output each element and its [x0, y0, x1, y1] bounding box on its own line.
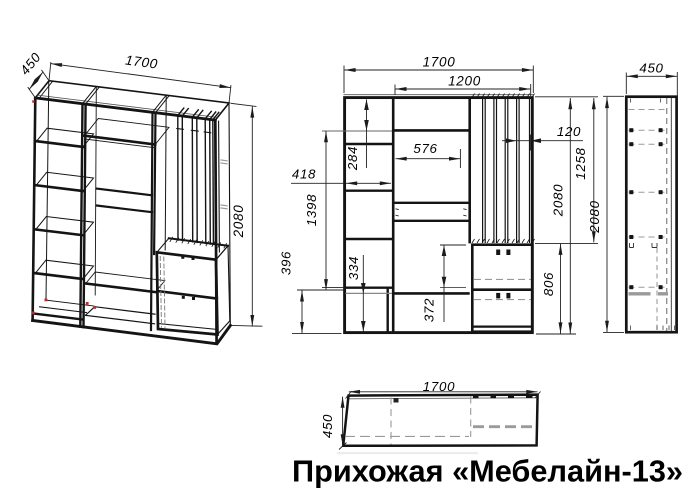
svg-text:1258: 1258 [573, 147, 588, 179]
svg-text:806: 806 [541, 272, 556, 296]
svg-text:418: 418 [292, 167, 316, 182]
svg-text:334: 334 [346, 256, 361, 280]
svg-text:450: 450 [639, 61, 663, 76]
svg-text:Прихожая «Мебелайн-13»: Прихожая «Мебелайн-13» [292, 454, 683, 489]
svg-text:450: 450 [320, 414, 335, 438]
svg-text:372: 372 [422, 298, 437, 322]
svg-text:2080: 2080 [231, 205, 246, 239]
svg-text:1700: 1700 [423, 55, 456, 70]
svg-text:396: 396 [279, 251, 294, 275]
svg-text:576: 576 [413, 141, 437, 156]
svg-text:2080: 2080 [587, 200, 602, 233]
svg-text:120: 120 [557, 124, 581, 139]
svg-text:284: 284 [345, 146, 360, 171]
svg-text:1200: 1200 [448, 74, 481, 89]
svg-text:1700: 1700 [423, 379, 455, 394]
svg-text:1398: 1398 [304, 194, 319, 226]
svg-text:2080: 2080 [551, 184, 566, 217]
